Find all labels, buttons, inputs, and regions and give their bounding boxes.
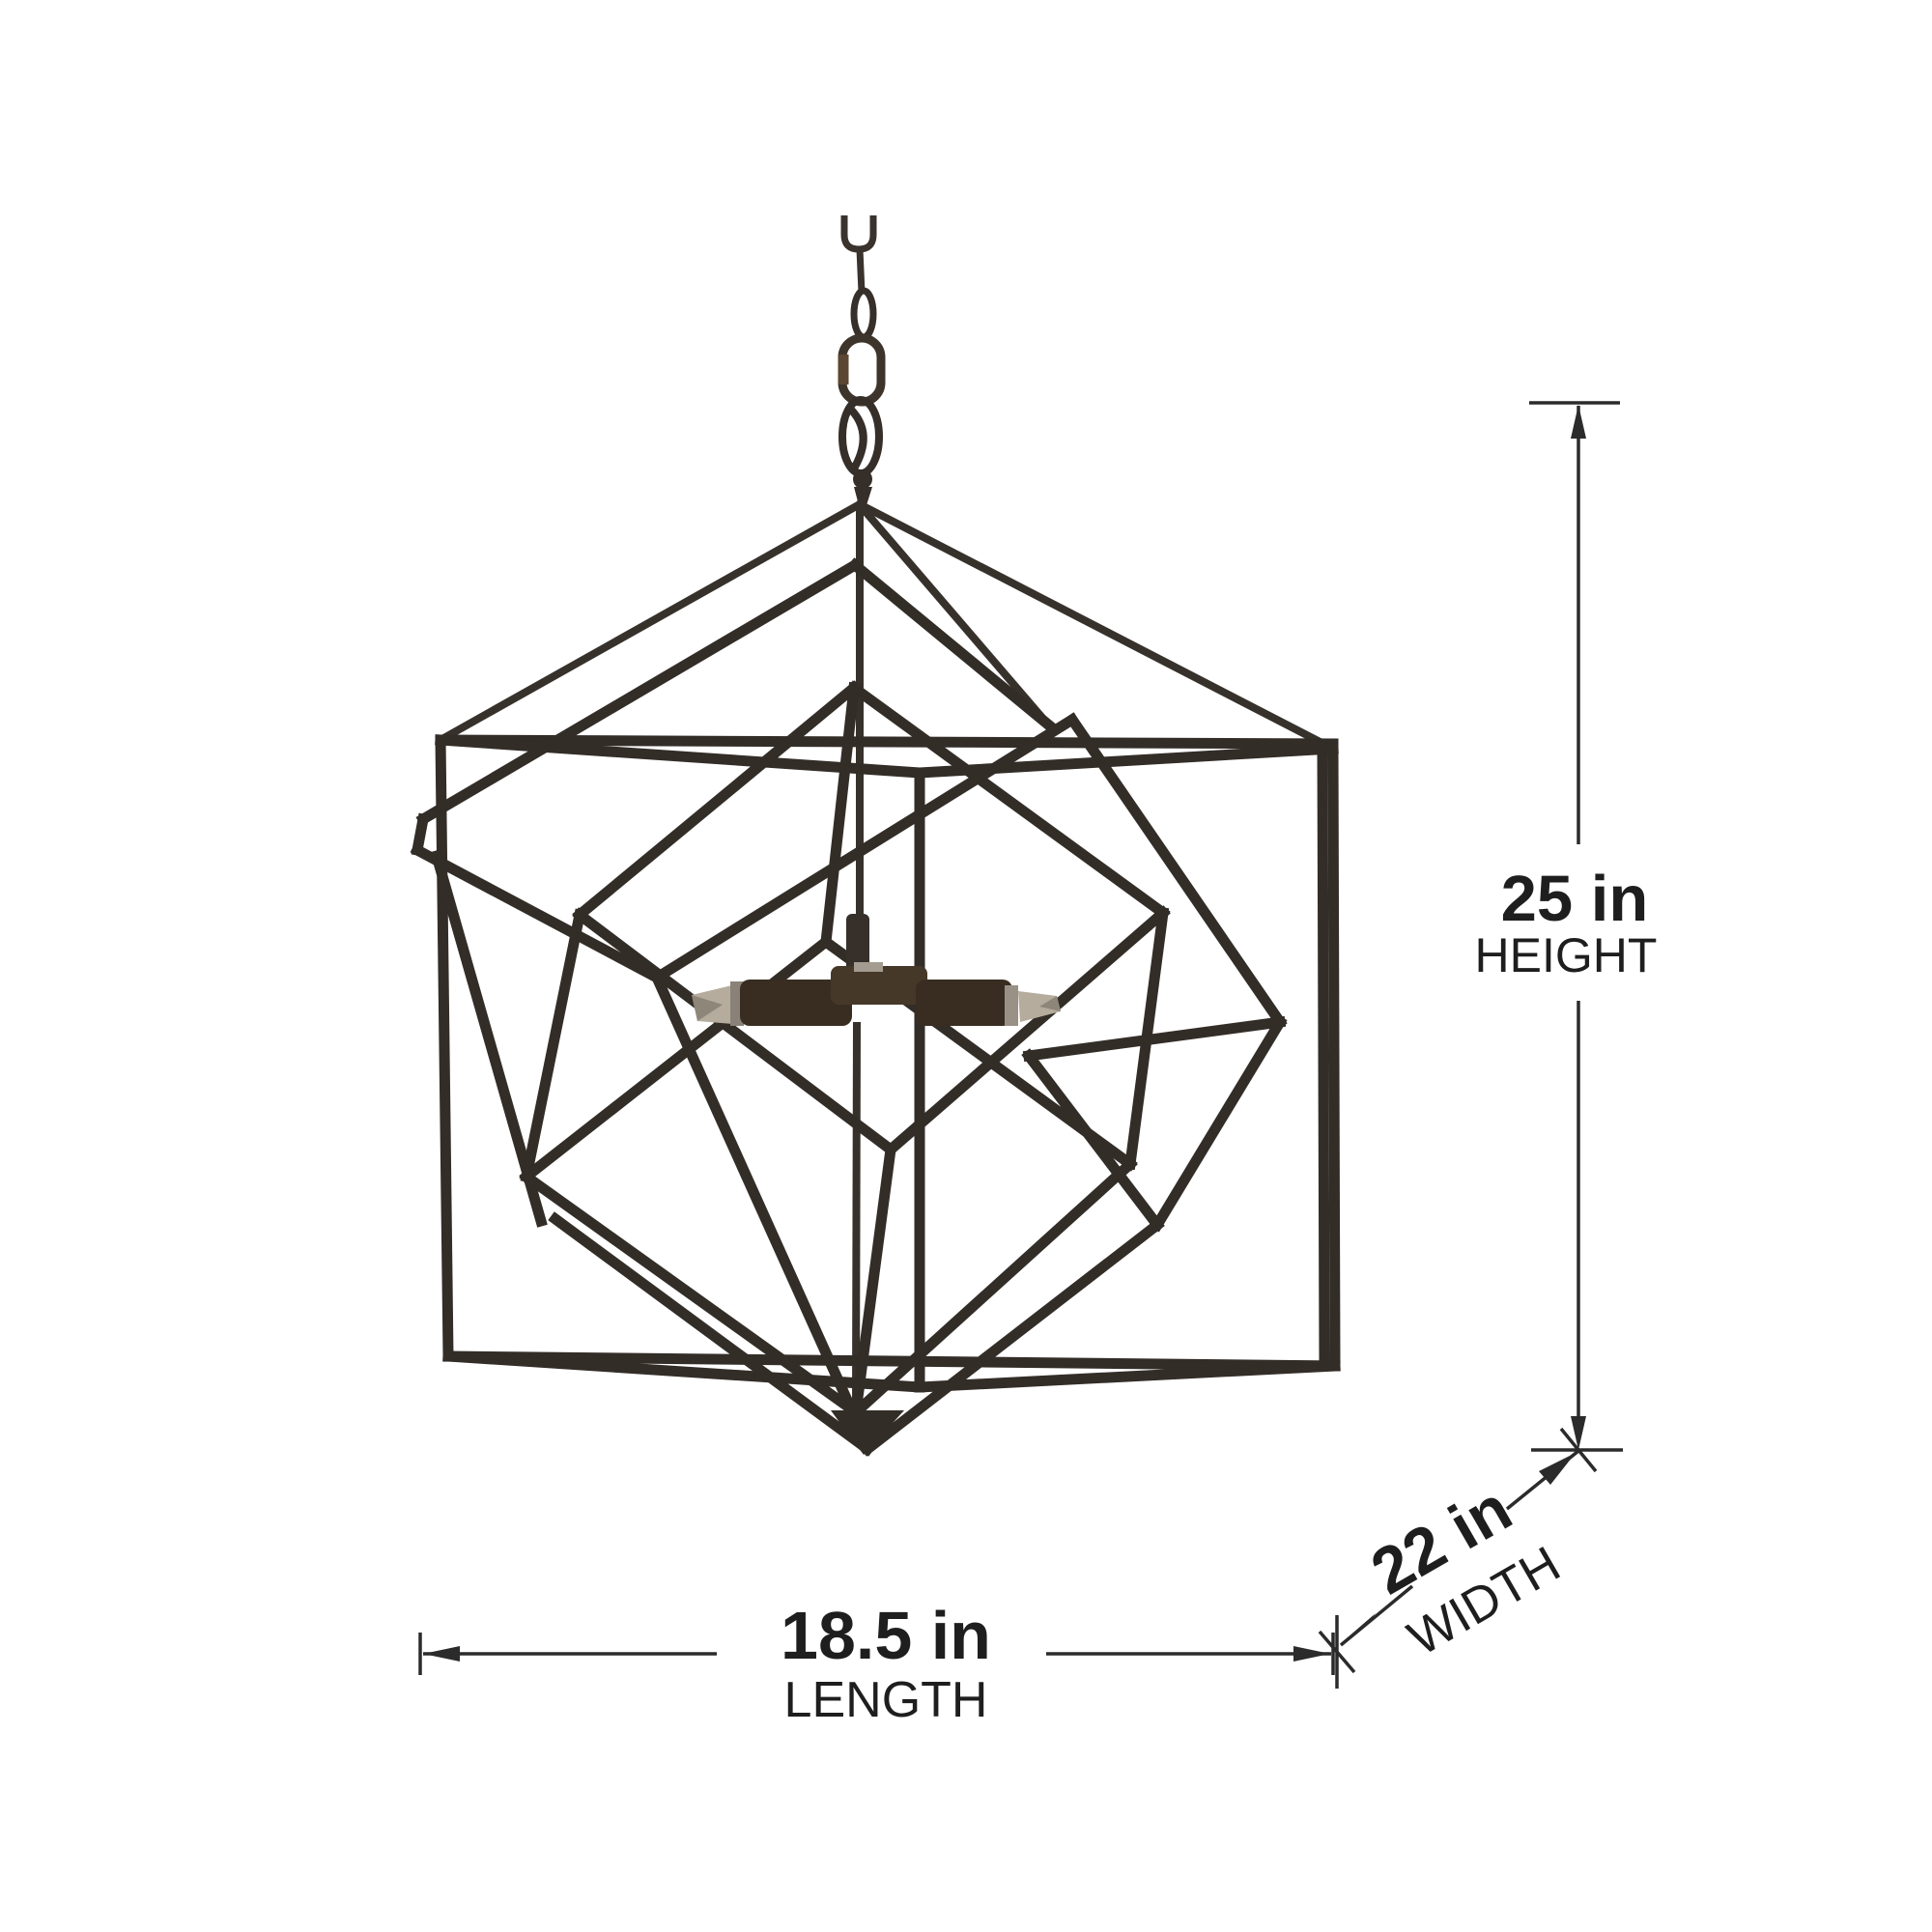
svg-text:25 in: 25 in — [1501, 863, 1649, 935]
svg-text:LENGTH: LENGTH — [784, 1672, 988, 1728]
svg-text:HEIGHT: HEIGHT — [1475, 928, 1658, 982]
svg-text:18.5 in: 18.5 in — [781, 1598, 991, 1673]
